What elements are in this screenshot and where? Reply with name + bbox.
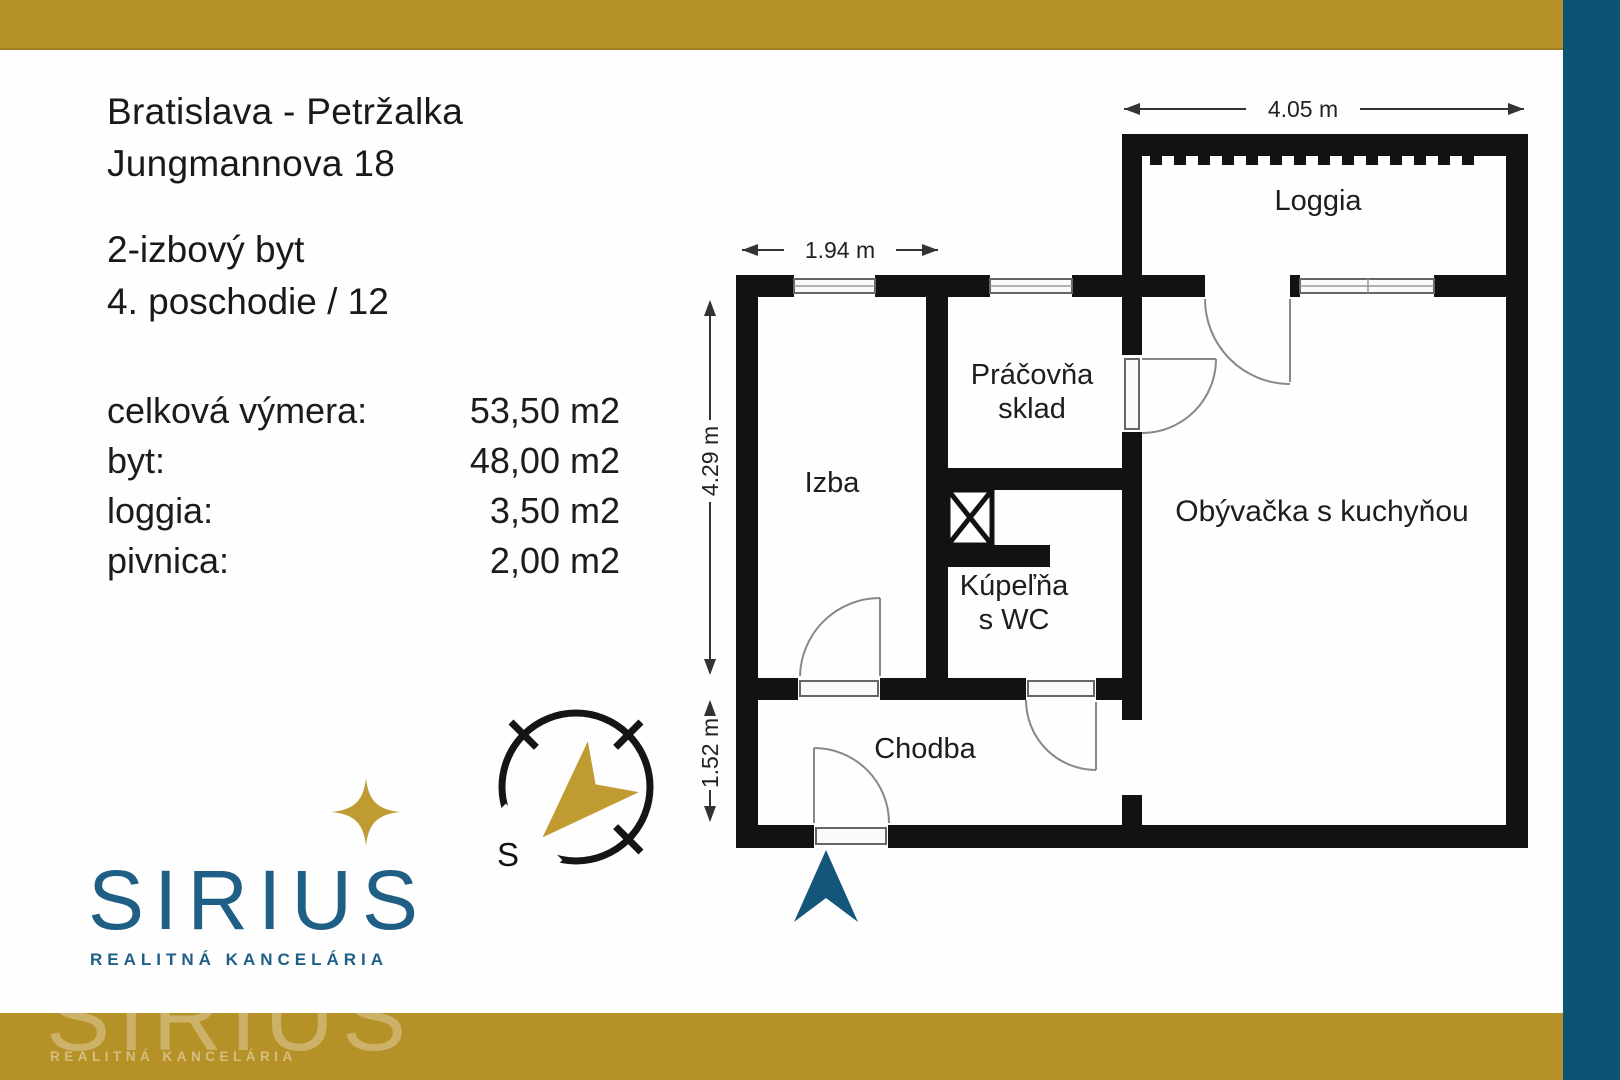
area-row-loggia: loggia: 3,50 m2 <box>107 490 620 540</box>
area-row-total: celková výmera: 53,50 m2 <box>107 390 620 440</box>
room-label-izba: Izba <box>805 467 861 499</box>
apartment-type: 2-izbový byt <box>107 224 389 276</box>
floor-plan: 4.05 m 1.94 m 4.29 m 1.52 m Loggia Izba … <box>680 90 1540 940</box>
room-label-kupelna: Kúpeľňa <box>960 570 1069 602</box>
shaft-box <box>948 490 992 545</box>
logo-wordmark: SIRIUS <box>88 858 428 942</box>
listing-street: Jungmannova 18 <box>107 138 463 190</box>
bottom-gold-bar: SIRIUS REALITNÁ KANCELÁRIA <box>0 1013 1563 1080</box>
area-value: 53,50 m2 <box>470 390 620 432</box>
room-label-loggia: Loggia <box>1274 185 1362 217</box>
dim-label-izba-width: 1.94 m <box>805 237 875 263</box>
watermark-tagline: REALITNÁ KANCELÁRIA <box>50 1049 297 1064</box>
compass: S <box>455 665 705 915</box>
threshold-izba-door <box>800 681 878 696</box>
top-gold-bar <box>0 0 1563 50</box>
threshold-pracovna-door <box>1125 359 1139 429</box>
room-label-chodba: Chodba <box>874 733 976 765</box>
star-icon <box>328 774 404 850</box>
watermark-wordmark: SIRIUS <box>46 1013 414 1073</box>
dimension-chodba-height: 1.52 m <box>697 700 723 822</box>
threshold-kupelna-door <box>1028 681 1094 696</box>
compass-south-label: S <box>497 836 519 873</box>
compass-circle-gap <box>478 804 563 889</box>
room-label-obyvacka: Obývačka s kuchyňou <box>1175 495 1468 528</box>
balcony-door <box>1205 299 1290 384</box>
area-value: 48,00 m2 <box>470 440 620 482</box>
dim-label-chodba-height: 1.52 m <box>697 718 723 788</box>
area-value: 2,00 m2 <box>490 540 620 582</box>
room-label-pracovna-2: sklad <box>998 393 1066 425</box>
area-row-cellar: pivnica: 2,00 m2 <box>107 540 620 590</box>
listing-subtitle: 2-izbový byt 4. poschodie / 12 <box>107 224 389 328</box>
window-loggia <box>1300 279 1434 293</box>
area-label: loggia: <box>107 490 213 532</box>
window-pracovna <box>990 279 1072 293</box>
window-izba <box>794 279 875 293</box>
area-label: celková výmera: <box>107 390 367 432</box>
listing-location: Bratislava - Petržalka <box>107 86 463 138</box>
entry-arrow-icon <box>794 850 858 922</box>
pracovna-door <box>1142 359 1216 433</box>
logo-tagline: REALITNÁ KANCELÁRIA <box>90 950 388 970</box>
dimension-izba-width: 1.94 m <box>742 237 938 263</box>
listing-title: Bratislava - Petržalka Jungmannova 18 <box>107 86 463 190</box>
right-teal-bar <box>1563 0 1620 1080</box>
izba-door <box>800 598 880 676</box>
area-label: byt: <box>107 440 165 482</box>
area-row-flat: byt: 48,00 m2 <box>107 440 620 490</box>
floor-info: 4. poschodie / 12 <box>107 276 389 328</box>
area-table: celková výmera: 53,50 m2 byt: 48,00 m2 l… <box>107 390 620 590</box>
room-label-pracovna: Práčovňa <box>971 359 1094 391</box>
kupelna-door <box>1026 700 1096 770</box>
room-label-kupelna-2: s WC <box>979 604 1050 636</box>
threshold-entry-door <box>816 828 886 844</box>
loggia-railing <box>1150 156 1474 165</box>
sirius-logo: SIRIUS REALITNÁ KANCELÁRIA <box>88 758 448 973</box>
area-value: 3,50 m2 <box>490 490 620 532</box>
dim-label-loggia-width: 4.05 m <box>1268 96 1338 122</box>
dimension-loggia-width: 4.05 m <box>1124 96 1524 122</box>
area-label: pivnica: <box>107 540 229 582</box>
dim-label-izba-height: 4.29 m <box>697 426 723 496</box>
dimension-izba-height: 4.29 m <box>697 300 723 675</box>
